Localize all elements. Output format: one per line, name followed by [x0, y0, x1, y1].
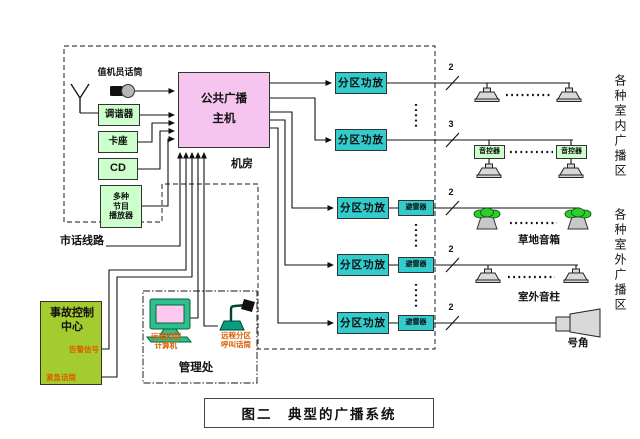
- accident-center-title: 事故控制 中心: [41, 307, 103, 335]
- arrester-2: 避雷器: [398, 257, 434, 273]
- public-address-host-box: 公共广播 主机: [178, 72, 270, 148]
- indoor-zone-label: 各种室内广播区: [612, 74, 629, 192]
- arrester-3: 避雷器: [398, 315, 434, 331]
- wire-count-3: 2: [444, 187, 458, 197]
- lawn-speaker-label: 草地音箱: [508, 234, 570, 247]
- volume-controller-1: 音控器: [474, 145, 505, 159]
- figure-caption: 图二 典型的广播系统: [204, 398, 434, 428]
- horn-icon: [556, 309, 600, 337]
- zone-amplifier-3: 分区功放: [337, 197, 389, 219]
- city-line-label: 市话线路: [54, 235, 110, 249]
- wire-count-4: 2: [444, 244, 458, 254]
- remote-mic-icon: [220, 299, 255, 330]
- remote-computer-label: 远程控制 计算机: [141, 332, 191, 351]
- speaker-icons: [475, 88, 588, 283]
- zone-amplifier-5: 分区功放: [337, 312, 389, 334]
- remote-mic-label: 远程分区 呼叫话筒: [211, 331, 261, 350]
- zone-amplifier-4: 分区功放: [337, 254, 389, 276]
- wire-count-2: 3: [444, 119, 458, 129]
- cassette-deck-box: 卡座: [98, 131, 138, 153]
- outdoor-zone-label: 各种室外广播区: [612, 208, 629, 326]
- horn-label: 号角: [560, 337, 596, 350]
- wire-count-1: 2: [444, 62, 458, 72]
- machine-room-label: 机房: [220, 158, 264, 172]
- tuner-box: 调谐器: [98, 104, 140, 126]
- alarm-signal-label: 告警信号: [65, 345, 103, 354]
- zone-amplifier-2: 分区功放: [335, 129, 387, 151]
- column-speaker-label: 室外音柱: [508, 291, 570, 304]
- accident-control-center-box: 事故控制 中心 告警信号 紧急话筒: [40, 301, 102, 385]
- emergency-mic-label: 紧急话筒: [42, 373, 80, 382]
- operator-mic-label: 值机员话筒: [92, 67, 148, 78]
- volume-controller-2: 音控器: [556, 145, 587, 159]
- wire-count-slashes: [446, 76, 459, 330]
- lawn-speaker-icons: [474, 208, 591, 229]
- antenna-icon: [71, 84, 89, 113]
- management-office-label: 管理处: [170, 361, 222, 375]
- operator-mic-icon: [110, 85, 135, 98]
- wire-count-5: 2: [444, 302, 458, 312]
- broadcast-system-diagram: 值机员话筒 调谐器 卡座 CD 多种 节目 播放器 公共广播 主机 机房 市话线…: [0, 0, 640, 439]
- zone-amplifier-1: 分区功放: [335, 72, 387, 94]
- cd-player-box: CD: [98, 158, 138, 180]
- program-player-box: 多种 节目 播放器: [100, 185, 142, 228]
- arrester-1: 避雷器: [398, 200, 434, 216]
